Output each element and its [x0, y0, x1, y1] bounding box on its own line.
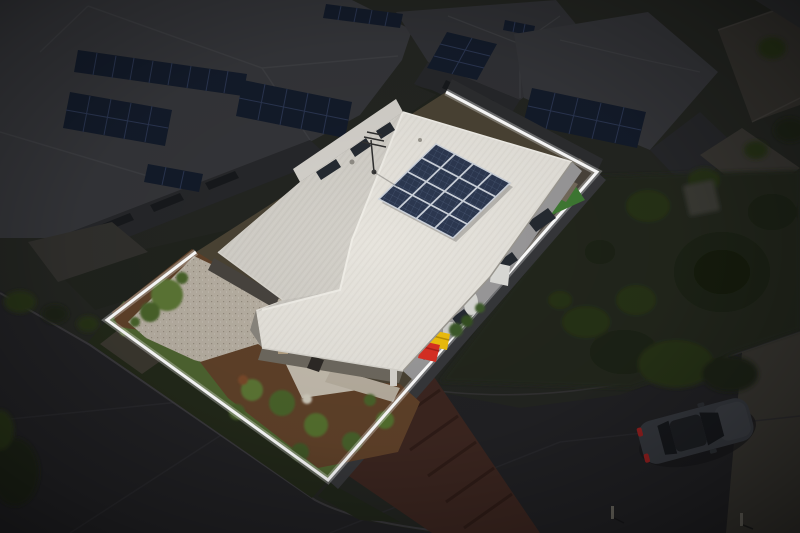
aerial-photo: [0, 0, 800, 533]
vignette-overlay: [0, 0, 800, 533]
